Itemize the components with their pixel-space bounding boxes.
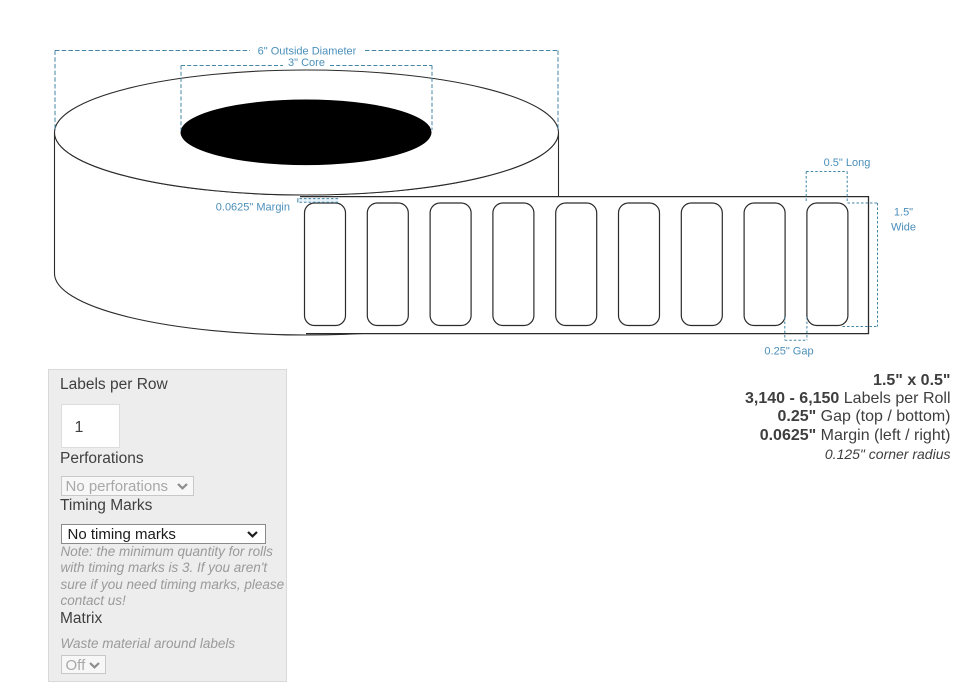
svg-text:0.0625" Margin: 0.0625" Margin: [216, 202, 290, 214]
svg-text:0.5" Long: 0.5" Long: [824, 157, 871, 169]
svg-text:1.5": 1.5": [894, 207, 913, 219]
svg-text:6" Outside Diameter: 6" Outside Diameter: [258, 46, 357, 58]
svg-text:Wide: Wide: [891, 222, 916, 234]
svg-text:3" Core: 3" Core: [288, 57, 325, 69]
svg-text:0.25" Gap: 0.25" Gap: [764, 346, 813, 358]
